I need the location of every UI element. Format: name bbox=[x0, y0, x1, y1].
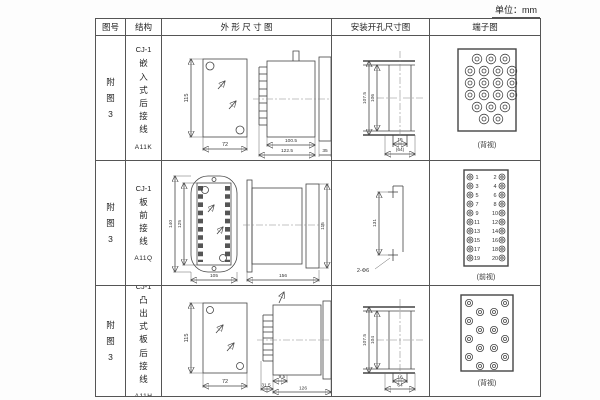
svg-text:11: 11 bbox=[474, 220, 480, 226]
dim-label: 156 bbox=[278, 273, 286, 279]
code-label: A11K bbox=[135, 144, 152, 151]
dim-label: 100.5 bbox=[284, 138, 296, 144]
header-fig: 图号 bbox=[96, 19, 126, 36]
header-install: 安装开孔尺寸图 bbox=[332, 19, 430, 36]
svg-text:13: 13 bbox=[474, 229, 480, 235]
outline-cell-row3: 115 72 9.5 31.5 bbox=[162, 286, 332, 396]
arrow-mark bbox=[217, 227, 223, 234]
hole-label: 2-Φ6 bbox=[356, 268, 368, 274]
svg-text:18: 18 bbox=[492, 247, 498, 253]
dim-label: 9.5 bbox=[278, 374, 285, 380]
svg-text:6: 6 bbox=[493, 193, 496, 199]
svg-text:19: 19 bbox=[474, 256, 480, 262]
terminal-diagram-a11h: (背视) bbox=[431, 287, 539, 395]
install-diagram-a11q: 131 2-Φ6 bbox=[333, 162, 429, 285]
dim-label: 115 bbox=[184, 93, 190, 102]
structure-cell-row3: CJ-1 凸出式板后接线 A11H bbox=[126, 286, 162, 396]
header-structure: 结构 bbox=[126, 19, 162, 36]
unit-label: 单位：mm bbox=[492, 3, 540, 18]
fig-cell-row1: 附图3 bbox=[96, 36, 126, 161]
dim-label: (64) bbox=[395, 147, 404, 153]
svg-text:8: 8 bbox=[493, 202, 496, 208]
dim-label: 31.5 bbox=[261, 383, 271, 389]
fig-no: 附图3 bbox=[105, 199, 116, 247]
dim-label: 140 bbox=[168, 219, 174, 227]
model-label: CJ-1 bbox=[136, 45, 152, 54]
dim-label: 72 bbox=[221, 142, 227, 148]
model-label: CJ-1 bbox=[136, 184, 152, 193]
front-view bbox=[203, 59, 247, 137]
arrow-mark bbox=[229, 101, 236, 109]
outline-diagram-a11k: 115 72 100.5 122.5 bbox=[163, 37, 331, 160]
svg-text:1: 1 bbox=[475, 175, 478, 181]
outline-diagram-a11h: 115 72 9.5 31.5 bbox=[163, 287, 331, 395]
mount-label: 嵌入式后接线 bbox=[139, 57, 149, 136]
dim-label: 106 bbox=[370, 93, 376, 101]
svg-text:10: 10 bbox=[492, 211, 498, 217]
svg-text:17: 17 bbox=[474, 247, 480, 253]
arrow-mark bbox=[216, 325, 223, 333]
svg-text:4: 4 bbox=[493, 184, 496, 190]
arrow-mark bbox=[218, 81, 225, 89]
side-view bbox=[257, 292, 331, 379]
dim-label: 107.5 bbox=[362, 91, 368, 103]
outline-diagram-a11q: 140 125 105 bbox=[163, 162, 331, 285]
outline-cell-row1: 115 72 100.5 122.5 bbox=[162, 36, 332, 161]
fig-no: 附图3 bbox=[105, 74, 116, 122]
dim-label: 125 bbox=[177, 219, 183, 227]
dim-label: 122.5 bbox=[280, 148, 292, 154]
header-terminal: 端子图 bbox=[430, 19, 540, 36]
outline-cell-row2: 140 125 105 bbox=[162, 161, 332, 286]
side-view bbox=[253, 51, 331, 141]
svg-text:3: 3 bbox=[475, 184, 478, 190]
dim-label: 115 bbox=[184, 334, 190, 343]
arrow-mark bbox=[208, 205, 214, 212]
view-label: (背视) bbox=[478, 140, 497, 149]
dim-label: 16 bbox=[397, 137, 403, 143]
terminal-pins bbox=[465, 54, 517, 124]
front-view bbox=[191, 176, 237, 272]
dim-label: 131 bbox=[372, 218, 378, 226]
svg-text:12: 12 bbox=[492, 220, 498, 226]
dim-label: 16 bbox=[397, 375, 403, 381]
model-label: CJ-1 bbox=[136, 286, 152, 291]
svg-text:2: 2 bbox=[493, 175, 496, 181]
dim-label: 105 bbox=[209, 273, 217, 279]
side-view bbox=[243, 180, 325, 272]
terminal-pins bbox=[465, 299, 508, 369]
view-label: (前视) bbox=[477, 272, 496, 281]
install-diagram-a11k: 107.5 106 16 (64) bbox=[333, 37, 429, 160]
structure-cell-row1: CJ-1 嵌入式后接线 A11K bbox=[126, 36, 162, 161]
install-cell-row3: 107.5 104 16 64 bbox=[332, 286, 430, 396]
fig-cell-row2: 附图3 bbox=[96, 161, 126, 286]
svg-text:7: 7 bbox=[475, 202, 478, 208]
install-diagram-a11h: 107.5 104 16 64 bbox=[333, 287, 429, 395]
arrow-mark bbox=[227, 343, 234, 351]
svg-text:9: 9 bbox=[475, 211, 478, 217]
svg-text:14: 14 bbox=[492, 229, 498, 235]
front-view bbox=[203, 303, 247, 373]
code-label: A11Q bbox=[134, 255, 152, 262]
svg-text:15: 15 bbox=[474, 238, 480, 244]
svg-text:5: 5 bbox=[475, 193, 478, 199]
terminal-diagram-a11k: (背视) bbox=[431, 37, 539, 160]
terminal-cell-row2: 12 34 56 78 910 1112 1314 1516 1718 1920… bbox=[430, 161, 540, 286]
terminal-cell-row1: (背视) bbox=[430, 36, 540, 161]
svg-text:20: 20 bbox=[492, 256, 498, 262]
arrow-mark bbox=[279, 292, 284, 303]
terminal-cell-row3: (背视) bbox=[430, 286, 540, 396]
svg-text:16: 16 bbox=[492, 238, 498, 244]
dim-label: 104 bbox=[370, 336, 376, 344]
terminal-diagram-a11q: 12 34 56 78 910 1112 1314 1516 1718 1920… bbox=[431, 162, 539, 285]
install-cell-row2: 131 2-Φ6 bbox=[332, 161, 430, 286]
code-label: A11H bbox=[135, 393, 153, 396]
dim-label: 35 bbox=[322, 148, 328, 154]
terminal-numbers: 12 34 56 78 910 1112 1314 1516 1718 1920 bbox=[474, 175, 498, 262]
dim-label: 64 bbox=[397, 383, 403, 389]
install-cell-row1: 107.5 106 16 (64) bbox=[332, 36, 430, 161]
structure-cell-row2: CJ-1 板前接线 A11Q bbox=[126, 161, 162, 286]
dim-label: 107.5 bbox=[362, 334, 368, 346]
spec-table: 图号 结构 外 形 尺 寸 图 安装开孔尺寸图 端子图 附图3 CJ-1 嵌入式… bbox=[95, 18, 541, 397]
terminal-pins bbox=[467, 174, 505, 261]
mount-label: 板前接线 bbox=[139, 196, 149, 249]
dim-label: 72 bbox=[221, 379, 227, 385]
view-label: (背视) bbox=[478, 378, 497, 387]
fig-no: 附图3 bbox=[105, 317, 116, 365]
mount-label: 凸出式板后接线 bbox=[139, 294, 149, 386]
dim-label: 126 bbox=[298, 386, 306, 392]
dim-label: 115 bbox=[320, 221, 326, 229]
header-outline: 外 形 尺 寸 图 bbox=[162, 19, 332, 36]
fig-cell-row3: 附图3 bbox=[96, 286, 126, 396]
